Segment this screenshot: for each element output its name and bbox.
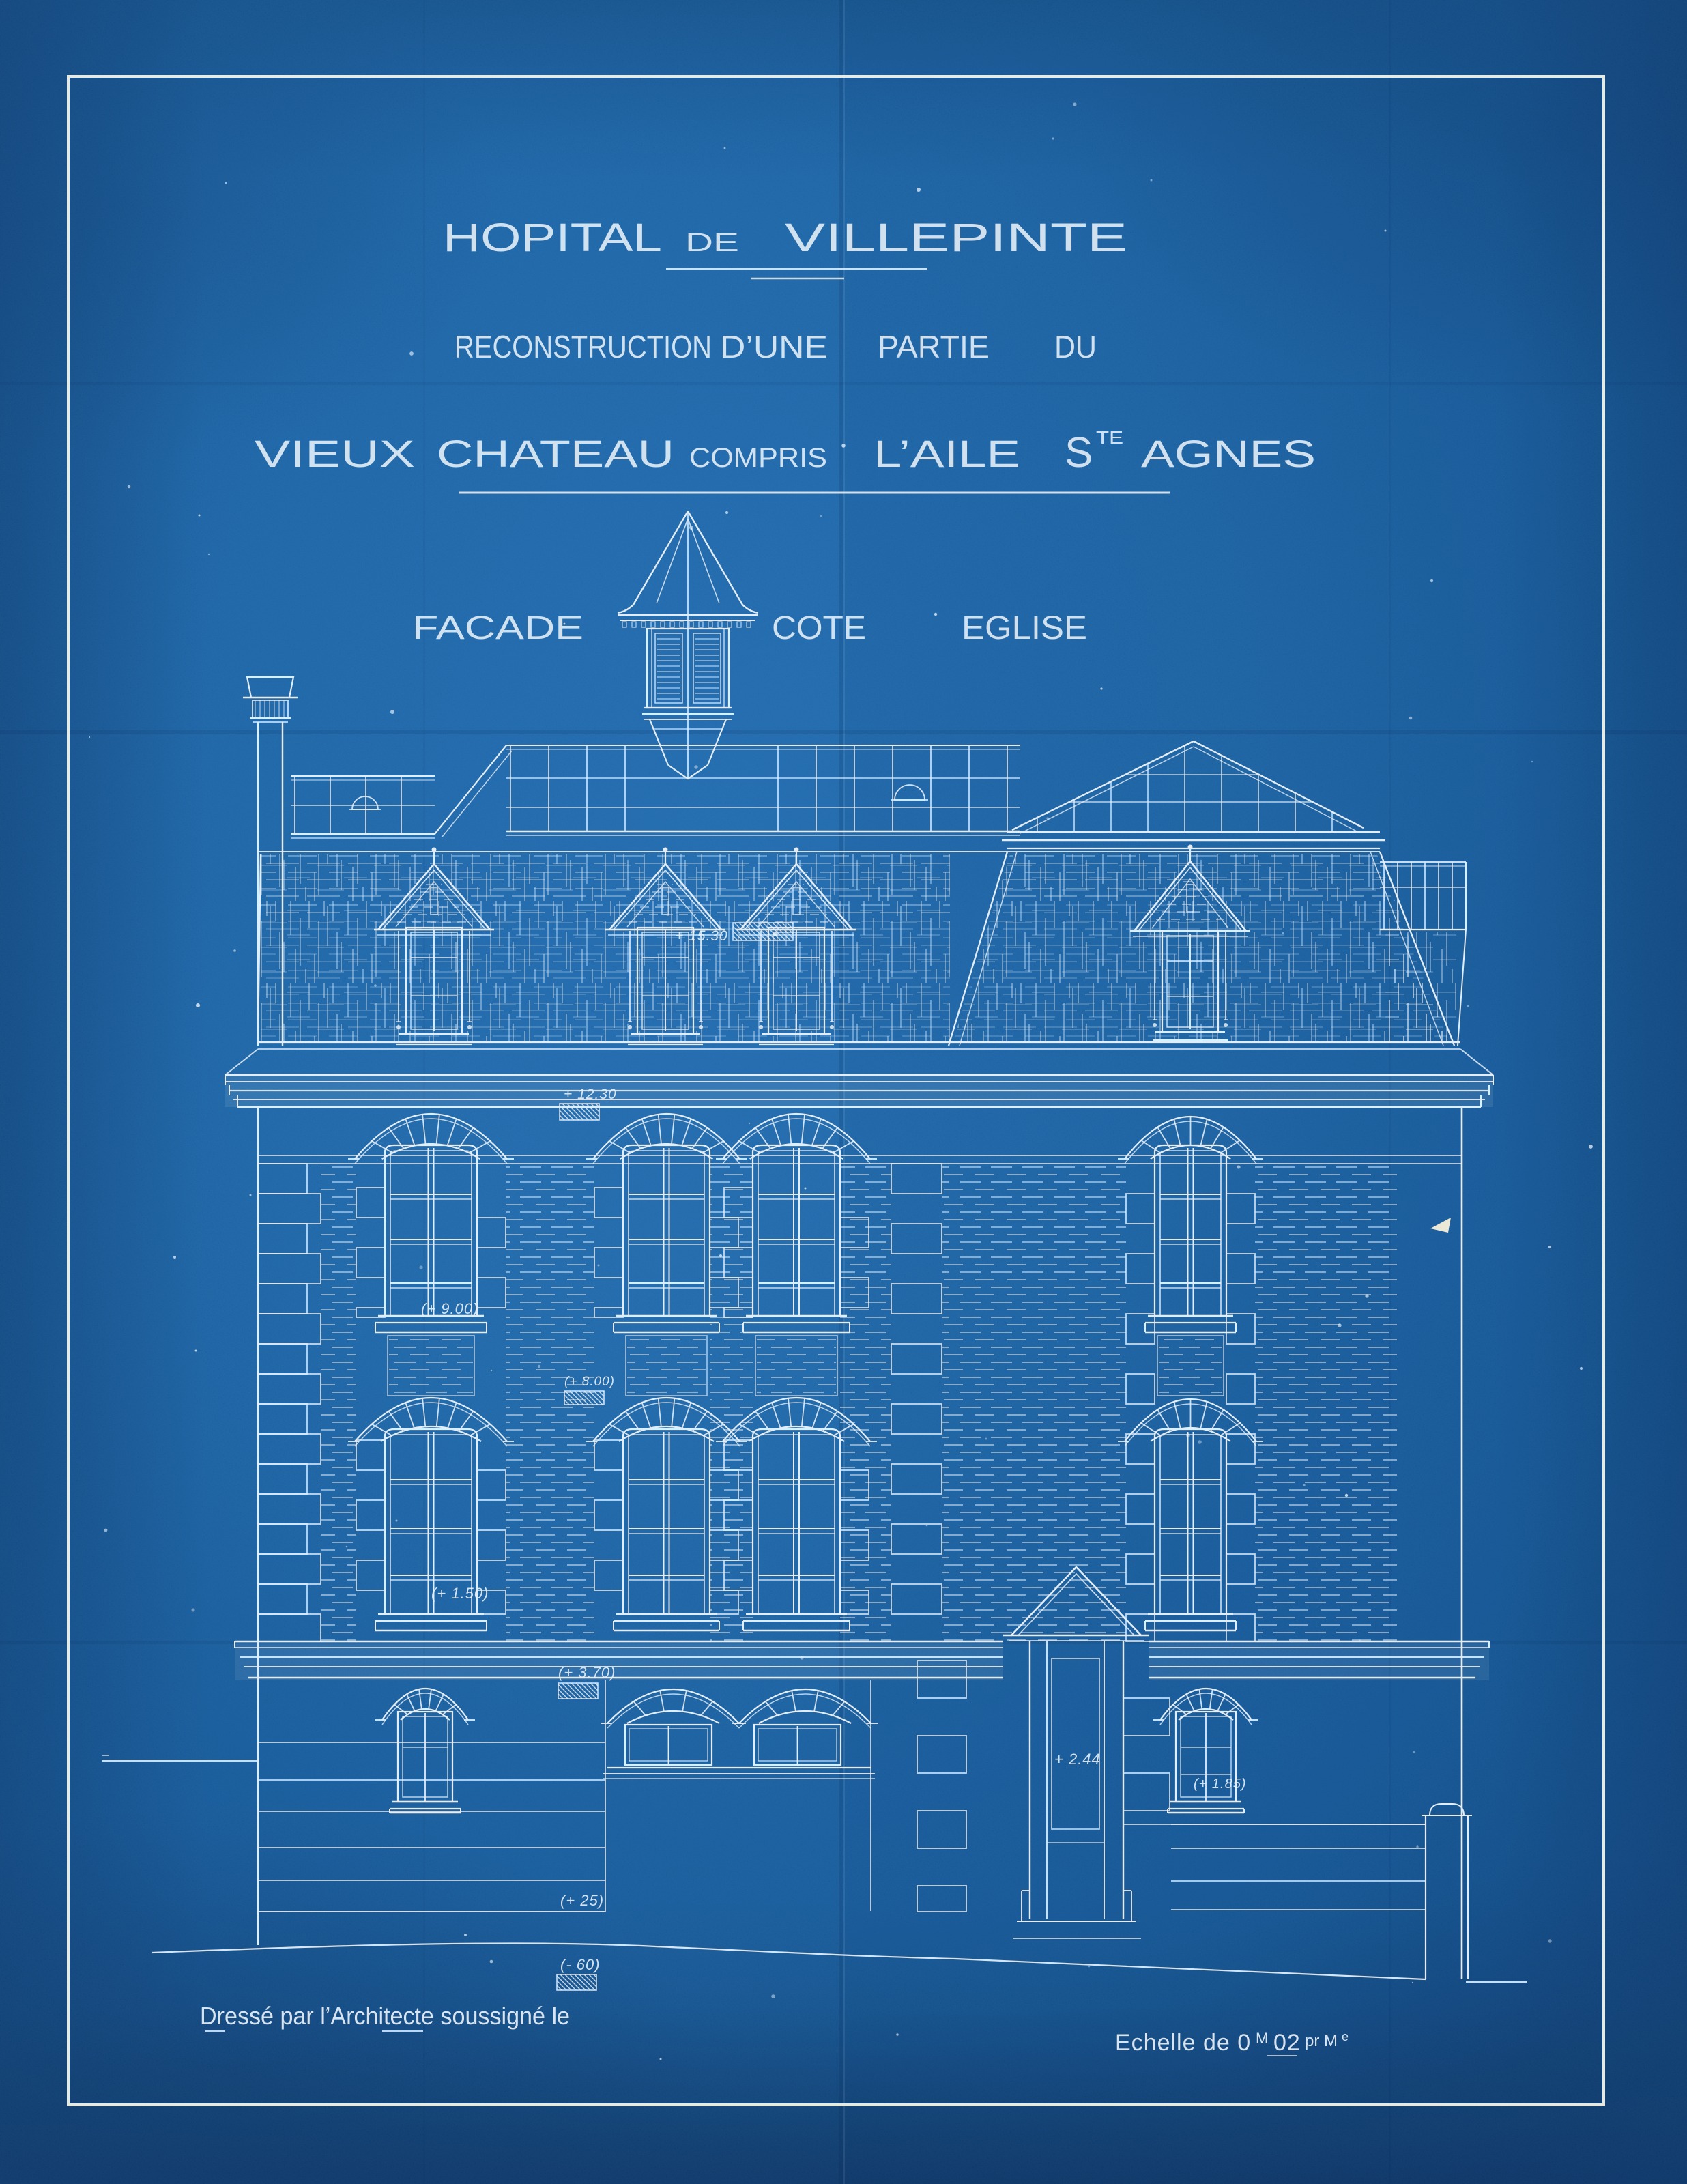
svg-text:(- 60): (- 60)	[560, 1956, 601, 1973]
svg-text:(+ 1.85): (+ 1.85)	[1194, 1777, 1246, 1792]
svg-text:AGNES: AGNES	[1141, 432, 1316, 475]
svg-text:L’AILE: L’AILE	[874, 432, 1020, 475]
svg-text:M: M	[1256, 2030, 1268, 2047]
svg-text:TE: TE	[1096, 427, 1123, 448]
svg-text:pr M: pr M	[1305, 2032, 1338, 2050]
svg-text:(+ 9.00): (+ 9.00)	[421, 1300, 478, 1317]
svg-text:RECONSTRUCTION: RECONSTRUCTION	[455, 329, 712, 364]
svg-text:D’UNE: D’UNE	[720, 329, 828, 364]
svg-text:FACADE: FACADE	[412, 610, 583, 646]
svg-text:Echelle de 0: Echelle de 0	[1115, 2030, 1251, 2056]
svg-text:VIEUX: VIEUX	[255, 432, 415, 475]
svg-text:+ 12.30: + 12.30	[564, 1087, 617, 1102]
svg-text:(+ 3.70): (+ 3.70)	[558, 1664, 616, 1681]
svg-text:e: e	[1342, 2030, 1349, 2043]
svg-text:HOPITAL: HOPITAL	[443, 216, 662, 260]
svg-text:Dressé par l’Architecte soussi: Dressé par l’Architecte soussigné le	[200, 2002, 570, 2030]
svg-text:COTE: COTE	[772, 610, 866, 646]
svg-text:(+ 8.00): (+ 8.00)	[564, 1375, 615, 1389]
svg-text:S: S	[1065, 429, 1093, 476]
svg-text:(+ 1.50): (+ 1.50)	[431, 1585, 489, 1602]
svg-text:VILLEPINTE: VILLEPINTE	[785, 216, 1127, 260]
svg-text:02: 02	[1273, 2030, 1301, 2056]
svg-text:DE: DE	[685, 229, 739, 257]
svg-text:EGLISE: EGLISE	[962, 610, 1087, 646]
svg-text:CHATEAU: CHATEAU	[437, 432, 674, 475]
svg-text:(+ 25): (+ 25)	[560, 1892, 604, 1909]
svg-text:+ 15.30: + 15.30	[675, 928, 728, 944]
svg-text:COMPRIS: COMPRIS	[689, 443, 827, 473]
svg-text:+ 2.44: + 2.44	[1054, 1751, 1101, 1768]
svg-text:DU: DU	[1054, 329, 1097, 364]
svg-text:PARTIE: PARTIE	[878, 329, 990, 364]
